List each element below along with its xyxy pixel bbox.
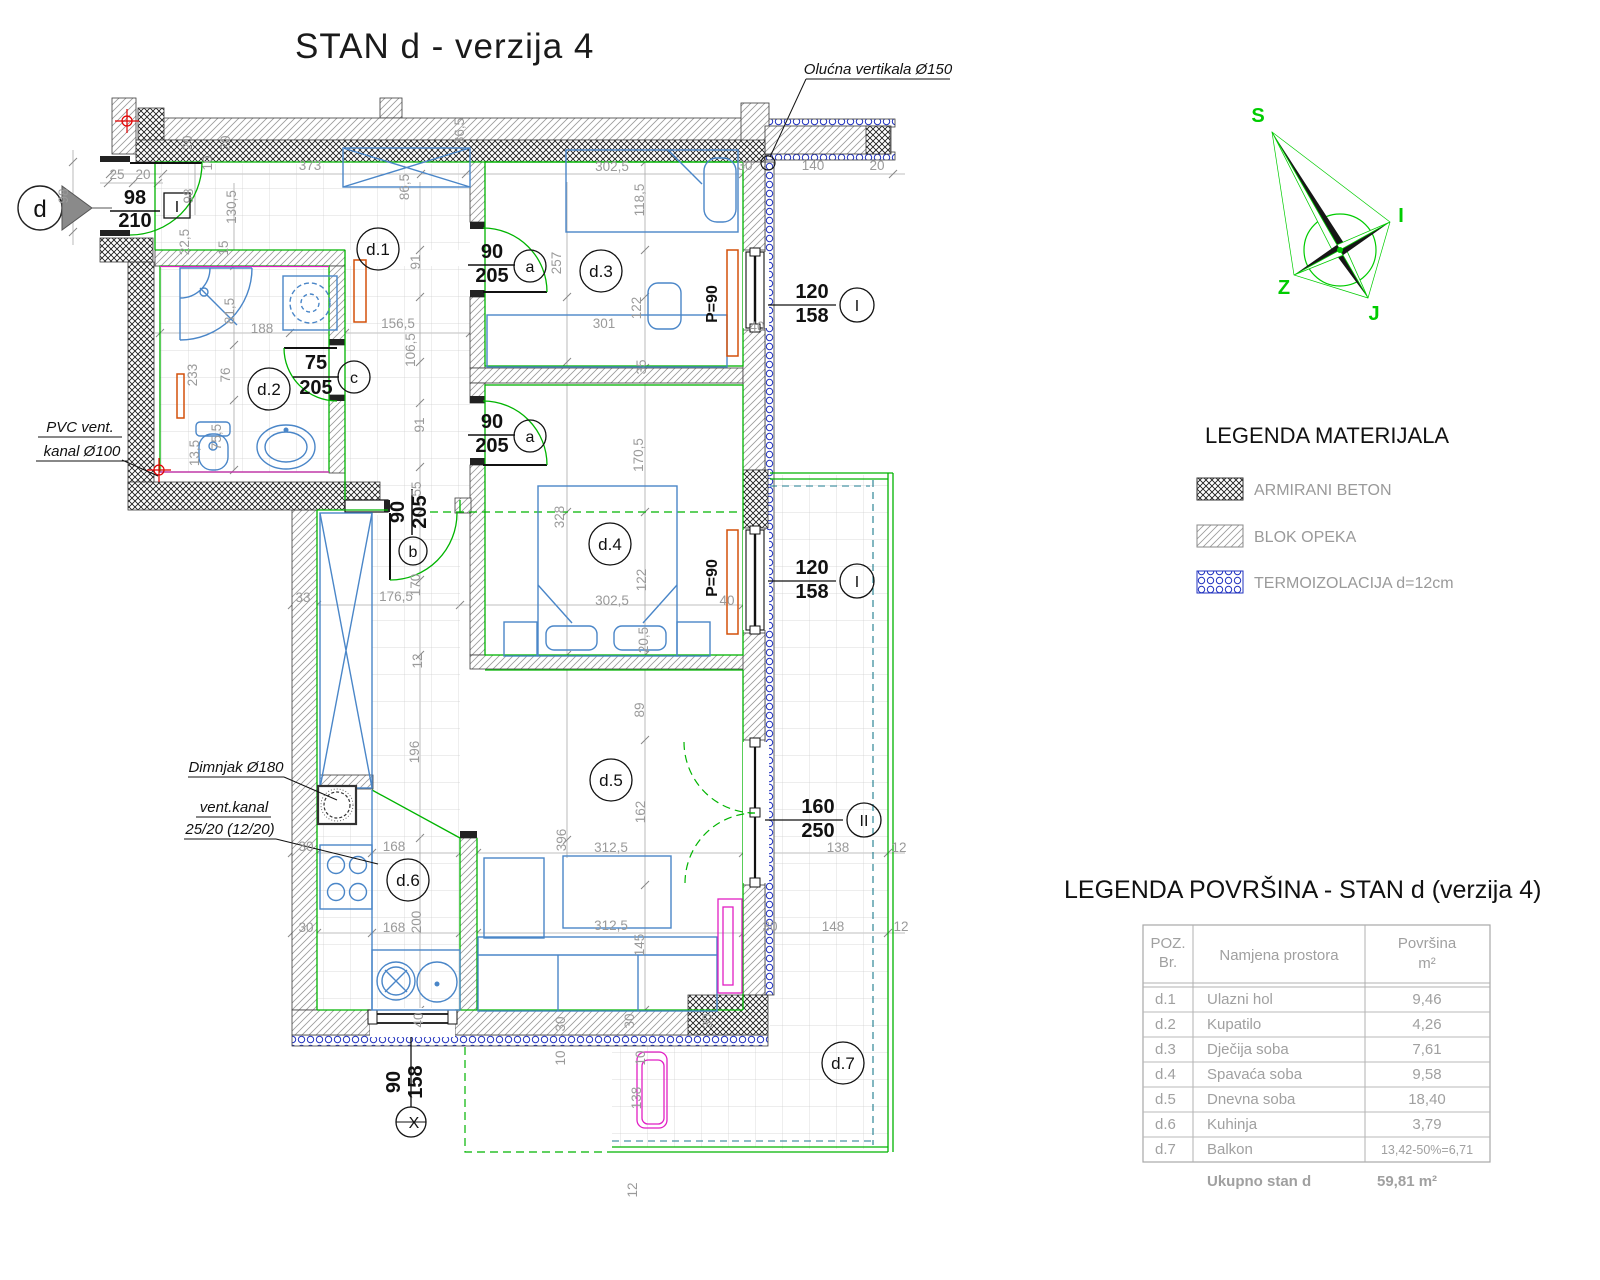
table-cell-poz: d.1 <box>1155 991 1176 1008</box>
svg-text:90: 90 <box>387 501 409 523</box>
svg-text:Br.: Br. <box>1159 954 1177 971</box>
table-cell-area: 18,40 <box>1408 1091 1446 1108</box>
dim-label: 30 <box>553 1016 568 1031</box>
dim-label: 148 <box>822 919 845 934</box>
dim-label: 40 <box>719 593 734 608</box>
dim-label: 98 <box>56 188 71 203</box>
svg-text:210: 210 <box>118 210 151 232</box>
table-cell-area: 13,42-50%=6,71 <box>1381 1143 1473 1157</box>
floor-plan-svg: STAN d - verzija 4 <box>0 0 1600 1280</box>
svg-text:m²: m² <box>1418 955 1436 972</box>
dim-label: 40 <box>411 1012 426 1027</box>
dim-label: 196 <box>407 741 422 764</box>
dim-label: 200 <box>409 911 424 934</box>
svg-text:b: b <box>409 544 418 561</box>
dim-label: 373 <box>299 158 322 173</box>
dim-label: 20 <box>869 158 884 173</box>
radiator-label-2: P=90 <box>704 559 721 597</box>
dim-label: 10 <box>553 1050 568 1065</box>
dim-label: 33 <box>295 590 310 605</box>
legend-label: ARMIRANI BETON <box>1254 482 1392 499</box>
window1-label: 120 158 I <box>768 281 874 327</box>
svg-text:X: X <box>409 1115 420 1132</box>
dim-label: 25 <box>109 167 124 182</box>
dim-label: 81,5 <box>222 298 237 324</box>
dim-label: 233 <box>185 364 200 387</box>
dim-label: 20,5 <box>636 627 651 653</box>
room-label-d.2: d.2 <box>257 380 281 399</box>
dim-label: 10 <box>200 155 215 170</box>
sheet-title: STAN d - verzija 4 <box>295 27 594 66</box>
svg-text:a: a <box>526 429 535 446</box>
table-cell-name: Kuhinja <box>1207 1116 1258 1133</box>
room-label-d.4: d.4 <box>598 535 622 554</box>
legend-label: BLOK OPEKA <box>1254 529 1357 546</box>
dim-label: 188 <box>251 321 274 336</box>
svg-text:205: 205 <box>475 435 508 457</box>
materials-legend: LEGENDA MATERIJALA ARMIRANI BETON BLOK O… <box>1197 423 1454 593</box>
dim-label: 30 <box>298 839 313 854</box>
dim-label: 301 <box>593 316 616 331</box>
dim-label: 118,5 <box>632 184 647 217</box>
room-label-d.6: d.6 <box>396 871 420 890</box>
dim-label: 20 <box>180 135 195 150</box>
svg-text:kanal Ø100: kanal Ø100 <box>44 443 121 460</box>
dim-label: 30 <box>298 920 313 935</box>
table-cell-poz: d.6 <box>1155 1116 1176 1133</box>
svg-text:205: 205 <box>299 377 332 399</box>
table-cell-name: Kupatilo <box>1207 1016 1261 1033</box>
compass-west: Z <box>1278 277 1290 299</box>
dim-label: 156,5 <box>381 316 415 331</box>
table-cell-name: Balkon <box>1207 1141 1253 1158</box>
table-cell-poz: d.4 <box>1155 1066 1176 1083</box>
area-table-title: LEGENDA POVRŠINA - STAN d (verzija 4) <box>1064 875 1541 904</box>
svg-text:90: 90 <box>481 241 503 263</box>
svg-text:205: 205 <box>475 265 508 287</box>
dim-label: 12 <box>893 919 908 934</box>
svg-text:250: 250 <box>801 820 834 842</box>
dim-label: 12 <box>891 840 906 855</box>
table-cell-name: Dnevna soba <box>1207 1091 1296 1108</box>
svg-text:90: 90 <box>383 1071 405 1093</box>
dim-label: 75,5 <box>209 424 224 450</box>
dim-label: 12 <box>625 1182 640 1197</box>
table-cell-area: 7,61 <box>1412 1041 1441 1058</box>
swatch-armirani-beton <box>1197 478 1243 500</box>
svg-text:I: I <box>175 199 179 216</box>
dim-label: 55 <box>409 481 424 496</box>
dim-label: 22,5 <box>177 229 192 255</box>
svg-text:II: II <box>860 813 869 830</box>
dim-label: 12 <box>410 653 425 668</box>
table-cell-name: Dječija soba <box>1207 1041 1289 1058</box>
dim-label: 312,5 <box>594 918 628 933</box>
svg-text:Površina: Površina <box>1398 935 1457 952</box>
dim-label: 30 <box>700 1013 715 1028</box>
dim-label: 36,5 <box>452 118 467 144</box>
dim-label: 138 <box>629 1087 644 1110</box>
svg-text:c: c <box>350 370 358 387</box>
compass-east: I <box>1398 205 1404 227</box>
dim-label: 91 <box>408 254 423 269</box>
radiator-label-1: P=90 <box>704 285 721 323</box>
dim-label: 10 <box>633 1050 648 1065</box>
dim-label: 106,5 <box>403 333 418 367</box>
compass-north: S <box>1251 105 1264 127</box>
dim-label: 312,5 <box>594 840 628 855</box>
svg-text:Dimnjak Ø180: Dimnjak Ø180 <box>188 759 284 776</box>
swatch-termoizolacija <box>1197 571 1243 593</box>
svg-text:I: I <box>855 574 859 591</box>
svg-text:120: 120 <box>795 557 828 579</box>
svg-text:PVC vent.: PVC vent. <box>46 419 114 436</box>
dim-label: 257 <box>549 252 564 275</box>
table-cell-poz: d.7 <box>1155 1141 1176 1158</box>
dim-label: 130,5 <box>224 190 239 224</box>
dim-label: 13,5 <box>187 440 202 466</box>
door-a1-label: 90 205 a <box>468 241 546 287</box>
svg-text:25/20 (12/20): 25/20 (12/20) <box>184 821 274 838</box>
svg-text:90: 90 <box>481 411 503 433</box>
dim-label: 122 <box>629 297 644 320</box>
dim-label: 170 <box>408 574 423 597</box>
dim-label: 162 <box>633 801 648 824</box>
table-cell-poz: d.5 <box>1155 1091 1176 1108</box>
table-cell-area: 4,26 <box>1412 1016 1441 1033</box>
svg-text:POZ.: POZ. <box>1150 935 1185 952</box>
table-cell-poz: d.2 <box>1155 1016 1176 1033</box>
tv-unit <box>718 899 742 993</box>
table-cell-area: 9,58 <box>1412 1066 1441 1083</box>
dim-label: 89 <box>632 702 647 717</box>
dim-label: 91 <box>412 417 427 432</box>
sofa-d5 <box>478 858 717 1011</box>
area-table-rows: d.1Ulazni hol9,46d.2Kupatilo4,26d.3Dječi… <box>1143 991 1490 1158</box>
dim-label: 15 <box>216 240 231 255</box>
kitchen-window-label: 90 158 X <box>383 1037 427 1137</box>
svg-text:I: I <box>855 298 859 315</box>
svg-text:160: 160 <box>801 796 834 818</box>
dim-label: 20 <box>135 167 150 182</box>
total-value: 59,81 m² <box>1377 1173 1437 1190</box>
dim-label: 168 <box>383 839 406 854</box>
dim-label: 302,5 <box>595 593 629 608</box>
room-label-d.3: d.3 <box>589 262 613 281</box>
room-label-d.5: d.5 <box>599 771 623 790</box>
legend-label: TERMOIZOLACIJA d=12cm <box>1254 575 1454 592</box>
dim-label: 122 <box>634 569 649 592</box>
dim-label: 170,5 <box>631 438 646 472</box>
compass-rose: S I Z J <box>1251 105 1403 325</box>
svg-text:vent.kanal: vent.kanal <box>200 799 269 816</box>
area-table: LEGENDA POVRŠINA - STAN d (verzija 4) PO… <box>1064 875 1541 1190</box>
dim-label: 35 <box>634 359 649 374</box>
table-cell-area: 3,79 <box>1412 1116 1441 1133</box>
dim-label: 168 <box>383 920 406 935</box>
room-label-d.7: d.7 <box>831 1054 855 1073</box>
door-a2-label: 90 205 a <box>468 411 546 457</box>
compass-south: J <box>1368 303 1379 325</box>
svg-text:158: 158 <box>405 1065 427 1098</box>
table-cell-name: Ulazni hol <box>1207 991 1273 1008</box>
svg-text:Namjena prostora: Namjena prostora <box>1219 947 1339 964</box>
drawing-sheet: STAN d - verzija 4 <box>0 0 1600 1280</box>
dim-label: 328 <box>552 506 567 529</box>
dim-label: 30 <box>737 158 752 173</box>
dim-label: 98 <box>181 188 196 203</box>
svg-text:120: 120 <box>795 281 828 303</box>
dim-label: 140 <box>802 158 825 173</box>
svg-text:75: 75 <box>305 352 327 374</box>
room-label-d.1: d.1 <box>366 240 390 259</box>
svg-text:98: 98 <box>124 187 146 209</box>
svg-text:158: 158 <box>795 305 828 327</box>
dim-label: 30 <box>622 1013 637 1028</box>
dim-label: 145 <box>632 934 647 957</box>
dim-label: 76 <box>218 367 233 382</box>
table-cell-area: 9,46 <box>1412 991 1441 1008</box>
chimney <box>318 786 356 824</box>
materials-legend-title: LEGENDA MATERIJALA <box>1205 423 1449 448</box>
total-label: Ukupno stan d <box>1207 1173 1311 1190</box>
svg-text:158: 158 <box>795 581 828 603</box>
svg-text:Olućna vertikala Ø150: Olućna vertikala Ø150 <box>804 61 953 78</box>
dim-label: 86,5 <box>397 174 412 200</box>
table-cell-poz: d.3 <box>1155 1041 1176 1058</box>
dim-label: 396 <box>554 829 569 852</box>
dim-label: 20 <box>218 135 233 150</box>
section-marker-letter: d <box>33 196 46 223</box>
dim-label: 30 <box>762 919 777 934</box>
svg-text:a: a <box>526 259 535 276</box>
dim-label: 40 <box>749 319 764 334</box>
dim-label: 302,5 <box>595 159 629 174</box>
dim-label: 138 <box>827 840 850 855</box>
table-cell-name: Spavaća soba <box>1207 1066 1303 1083</box>
swatch-blok-opeka <box>1197 525 1243 547</box>
